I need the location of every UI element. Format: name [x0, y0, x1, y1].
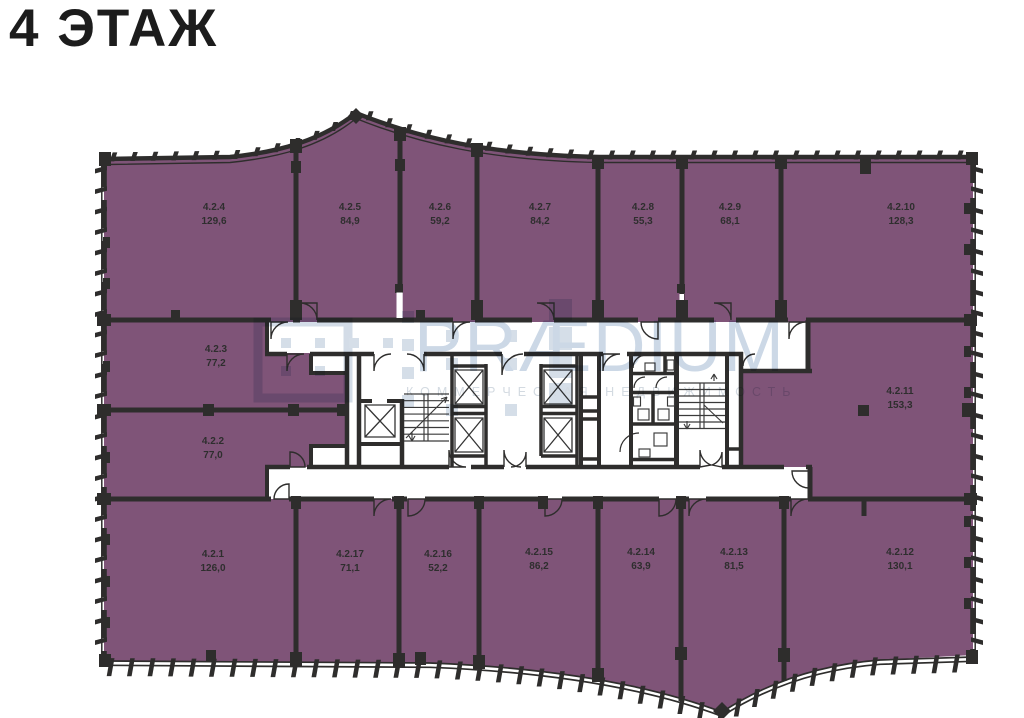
svg-text:86,2: 86,2 [529, 561, 549, 572]
svg-text:4.2.12: 4.2.12 [886, 547, 914, 558]
svg-text:153,3: 153,3 [887, 400, 912, 411]
svg-text:4.2.9: 4.2.9 [719, 202, 742, 213]
svg-text:КОММЕРЧЕСКАЯ НЕДВИЖИМОСТЬ: КОММЕРЧЕСКАЯ НЕДВИЖИМОСТЬ [406, 385, 797, 399]
svg-text:4.2.6: 4.2.6 [429, 202, 452, 213]
svg-text:84,9: 84,9 [340, 216, 360, 227]
svg-text:77,2: 77,2 [206, 358, 226, 369]
svg-text:4.2.1: 4.2.1 [202, 549, 225, 560]
svg-text:4.2.8: 4.2.8 [632, 202, 655, 213]
svg-text:63,9: 63,9 [631, 561, 651, 572]
svg-text:128,3: 128,3 [888, 216, 913, 227]
svg-text:4.2.2: 4.2.2 [202, 436, 225, 447]
svg-text:4.2.13: 4.2.13 [720, 547, 748, 558]
svg-text:81,5: 81,5 [724, 561, 744, 572]
svg-text:52,2: 52,2 [428, 563, 448, 574]
svg-text:130,1: 130,1 [887, 561, 912, 572]
svg-text:55,3: 55,3 [633, 216, 653, 227]
svg-text:84,2: 84,2 [530, 216, 550, 227]
svg-text:68,1: 68,1 [720, 216, 740, 227]
svg-text:59,2: 59,2 [430, 216, 450, 227]
svg-text:4.2.5: 4.2.5 [339, 202, 362, 213]
svg-text:77,0: 77,0 [203, 450, 223, 461]
svg-text:4.2.11: 4.2.11 [886, 386, 914, 397]
svg-text:PRÆDIUM: PRÆDIUM [414, 306, 785, 387]
svg-text:4.2.16: 4.2.16 [424, 549, 452, 560]
svg-text:4.2.14: 4.2.14 [627, 547, 655, 558]
svg-text:4.2.7: 4.2.7 [529, 202, 552, 213]
svg-text:4.2.15: 4.2.15 [525, 547, 553, 558]
svg-text:4.2.10: 4.2.10 [887, 202, 915, 213]
svg-text:71,1: 71,1 [340, 563, 360, 574]
svg-text:129,6: 129,6 [201, 216, 226, 227]
svg-text:4.2.3: 4.2.3 [205, 344, 228, 355]
svg-text:4.2.4: 4.2.4 [203, 202, 226, 213]
svg-text:4.2.17: 4.2.17 [336, 549, 364, 560]
svg-text:126,0: 126,0 [200, 563, 225, 574]
